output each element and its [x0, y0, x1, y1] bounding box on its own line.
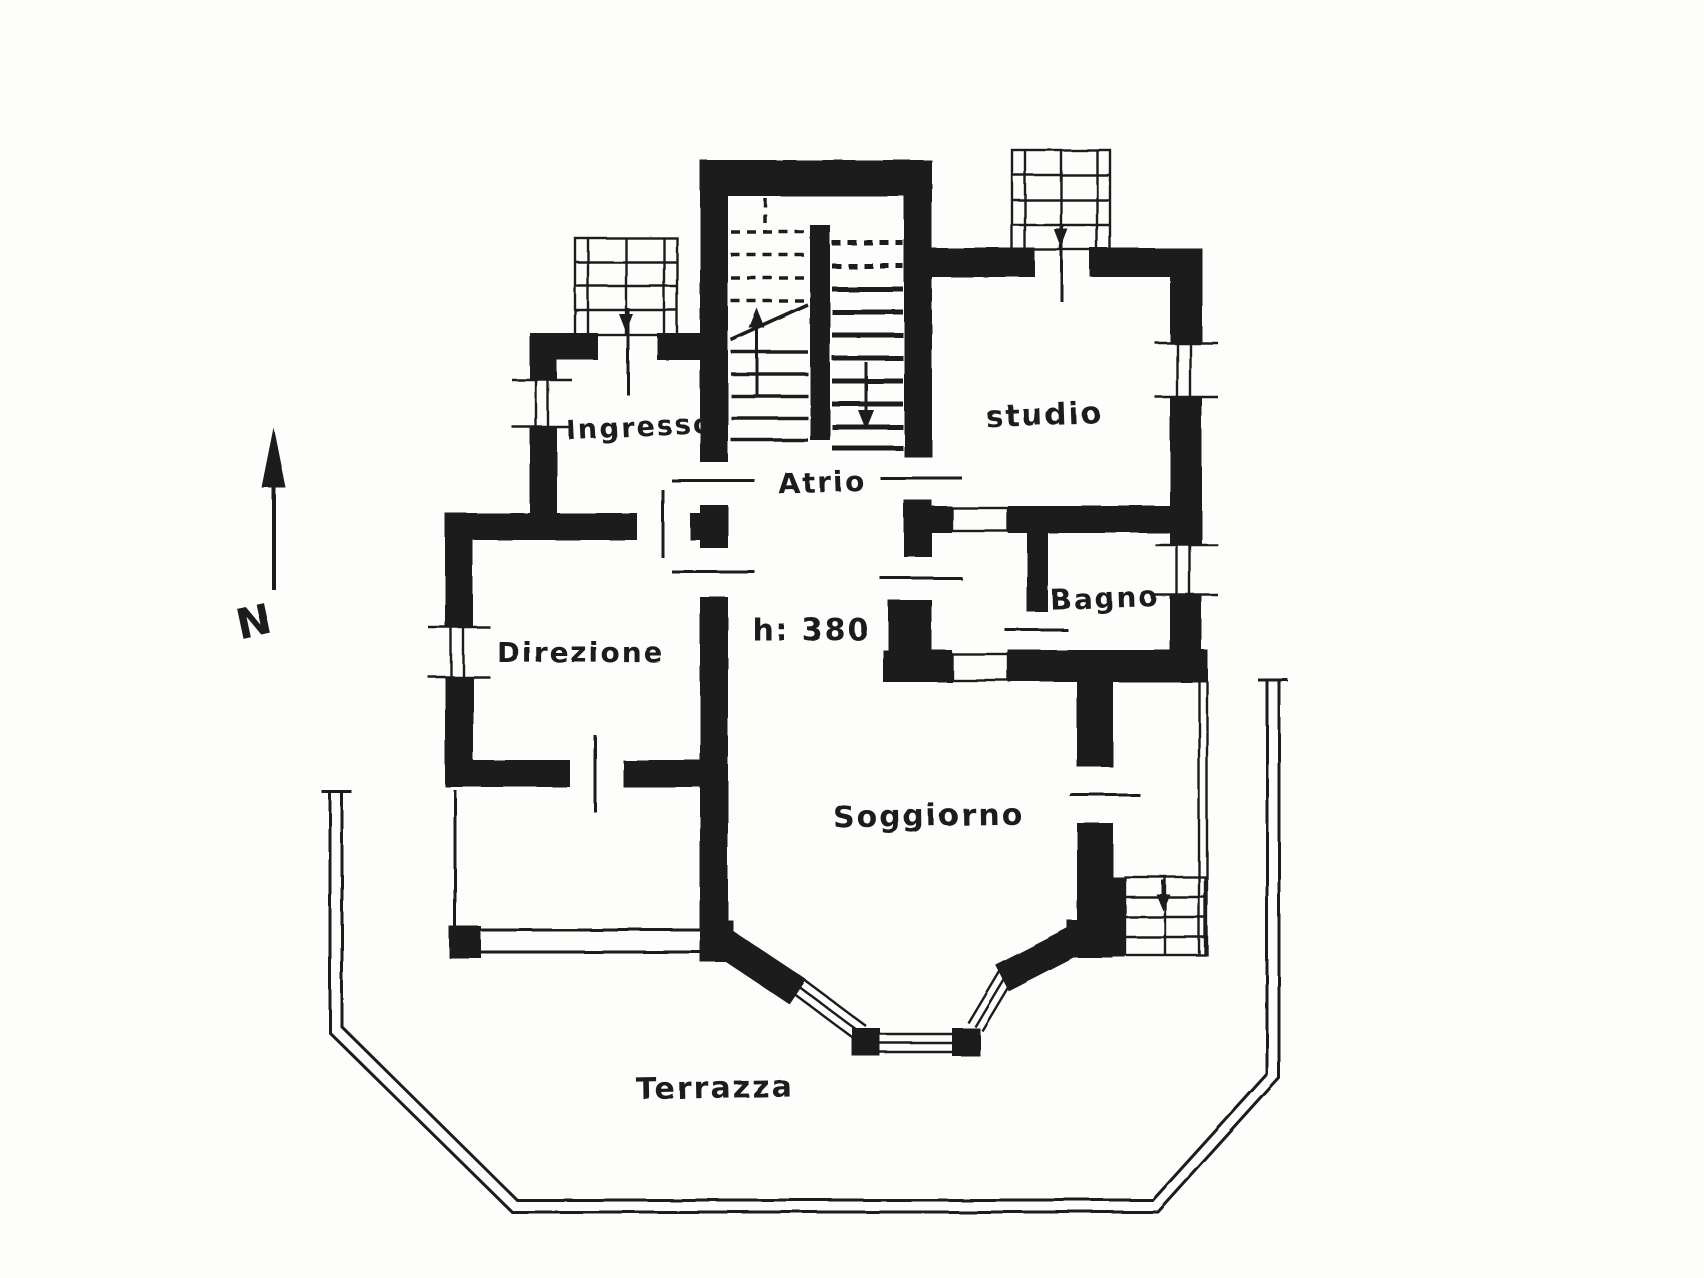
- stair-southeast: [1125, 877, 1205, 955]
- porch-pillar: [449, 926, 481, 958]
- bay-window: [789, 966, 1016, 1052]
- external-stair-northwest: [575, 238, 677, 335]
- room-label-studio: studio: [984, 396, 1103, 435]
- room-label-atrio: Atrio: [778, 464, 867, 500]
- floor-plan-canvas: Ingresso studio Atrio h: 380 Bagno Direz…: [0, 0, 1704, 1278]
- room-label-soggiorno: Soggiorno: [833, 797, 1024, 835]
- compass-arrow-icon: [262, 428, 286, 590]
- external-stair-northeast: [1012, 150, 1110, 250]
- room-label-ingresso: Ingresso: [565, 408, 713, 447]
- room-labels: Ingresso studio Atrio h: 380 Bagno Direz…: [232, 396, 1160, 1108]
- height-annotation: h: 380: [752, 613, 870, 648]
- porch-outline: [449, 790, 702, 958]
- room-label-bagno: Bagno: [1050, 580, 1161, 617]
- compass-label: N: [232, 594, 279, 650]
- floor-plan-page: Ingresso studio Atrio h: 380 Bagno Direz…: [0, 0, 1704, 1278]
- room-label-direzione: Direzione: [497, 636, 665, 669]
- room-label-terrazza: Terrazza: [636, 1069, 794, 1107]
- stair-arrow-down-icon: [858, 362, 874, 430]
